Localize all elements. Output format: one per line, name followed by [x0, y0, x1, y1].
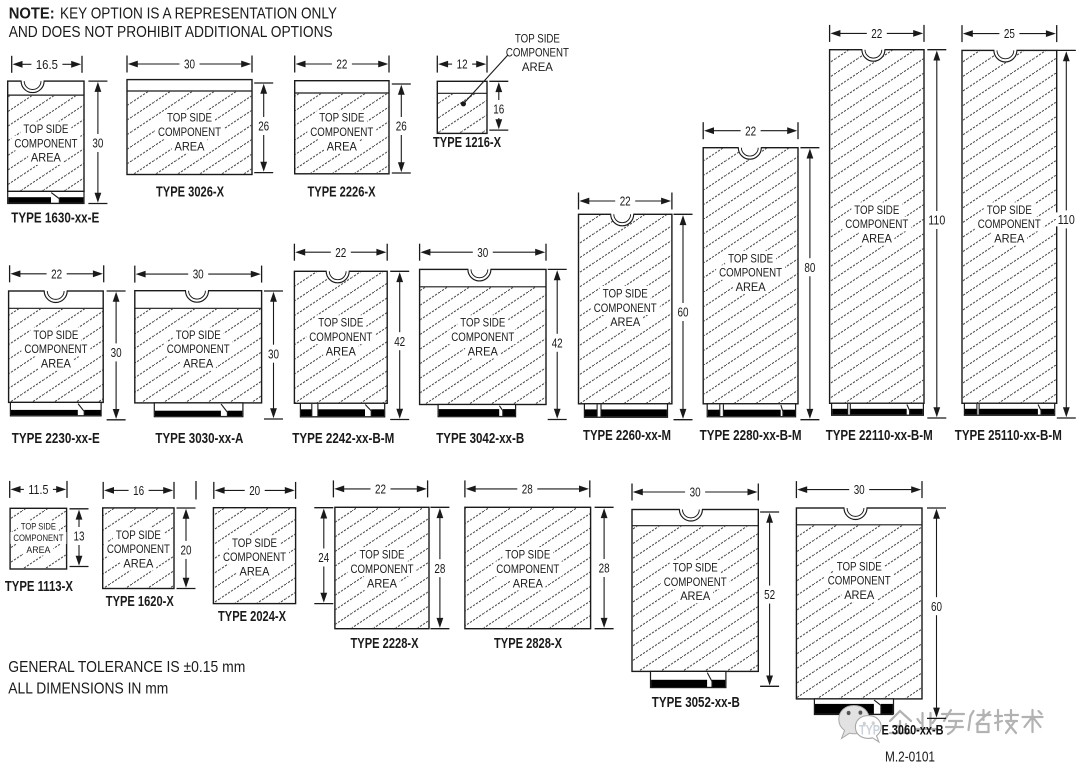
- svg-text:30: 30: [690, 485, 701, 500]
- svg-text:52: 52: [764, 587, 775, 602]
- svg-text:TOP SIDE: TOP SIDE: [515, 34, 560, 46]
- svg-text:TOP SIDE: TOP SIDE: [23, 122, 68, 136]
- svg-text:16.5: 16.5: [36, 57, 58, 72]
- svg-text:28: 28: [522, 482, 533, 497]
- svg-text:TYPE 2024-X: TYPE 2024-X: [218, 608, 286, 625]
- svg-text:30: 30: [193, 267, 204, 282]
- svg-text:TYPE 3042-xx-B: TYPE 3042-xx-B: [436, 430, 524, 447]
- svg-text:AREA: AREA: [610, 315, 640, 329]
- svg-text:110: 110: [1058, 212, 1075, 227]
- svg-text:TOP SIDE: TOP SIDE: [673, 561, 718, 575]
- svg-text:60: 60: [678, 305, 689, 320]
- svg-text:28: 28: [599, 561, 610, 576]
- svg-text:TYPE 1630-xx-E: TYPE 1630-xx-E: [11, 210, 99, 227]
- svg-text:AREA: AREA: [994, 232, 1024, 246]
- svg-text:TOP SIDE: TOP SIDE: [167, 111, 212, 125]
- svg-text:COMPONENT: COMPONENT: [309, 330, 372, 344]
- svg-text:110: 110: [928, 213, 945, 228]
- svg-text:M.2-0101: M.2-0101: [885, 749, 935, 766]
- svg-text:TYPE 3052-xx-B: TYPE 3052-xx-B: [652, 694, 740, 711]
- svg-text:30: 30: [854, 482, 865, 497]
- svg-text:22: 22: [51, 266, 62, 281]
- svg-text:COMPONENT: COMPONENT: [978, 217, 1041, 231]
- svg-text:TOP SIDE: TOP SIDE: [837, 559, 882, 573]
- svg-text:22: 22: [336, 57, 347, 72]
- svg-text:AREA: AREA: [327, 139, 357, 153]
- svg-text:TOP SIDE: TOP SIDE: [460, 316, 505, 330]
- svg-text:AREA: AREA: [326, 344, 356, 358]
- svg-text:TYPE 1620-X: TYPE 1620-X: [106, 593, 174, 610]
- svg-text:28: 28: [434, 561, 445, 576]
- svg-text:42: 42: [394, 334, 405, 349]
- svg-text:AREA: AREA: [468, 344, 498, 358]
- svg-text:TOP SIDE: TOP SIDE: [854, 203, 899, 217]
- svg-text:TYPE 2242-xx-B-M: TYPE 2242-xx-B-M: [292, 430, 394, 447]
- svg-text:COMPONENT: COMPONENT: [158, 125, 221, 139]
- svg-text:TOP SIDE: TOP SIDE: [232, 536, 277, 550]
- svg-text:TYP: TYP: [859, 722, 880, 738]
- svg-text:COMPONENT: COMPONENT: [664, 575, 727, 589]
- svg-text:11.5: 11.5: [28, 482, 48, 497]
- svg-text:30: 30: [111, 345, 122, 360]
- svg-text:TYPE 3026-X: TYPE 3026-X: [156, 184, 224, 201]
- svg-text:12: 12: [457, 57, 468, 72]
- svg-text:20: 20: [181, 543, 192, 558]
- svg-text:TYPE 2260-xx-M: TYPE 2260-xx-M: [583, 427, 671, 444]
- svg-text:AREA: AREA: [844, 588, 874, 602]
- svg-text:25: 25: [1004, 26, 1015, 41]
- svg-text:AREA: AREA: [367, 576, 397, 590]
- svg-text:COMPONENT: COMPONENT: [310, 125, 373, 139]
- svg-text:TOP SIDE: TOP SIDE: [33, 328, 78, 342]
- svg-text:GENERAL TOLERANCE IS ±0.15 mm: GENERAL TOLERANCE IS ±0.15 mm: [8, 659, 245, 676]
- svg-text:COMPONENT: COMPONENT: [223, 550, 286, 564]
- svg-text:TOP SIDE: TOP SIDE: [603, 287, 648, 301]
- svg-text:TOP SIDE: TOP SIDE: [116, 528, 161, 542]
- svg-text:42: 42: [552, 335, 563, 350]
- svg-text:COMPONENT: COMPONENT: [24, 342, 87, 356]
- svg-text:22: 22: [620, 194, 631, 209]
- svg-text:AND DOES NOT PROHIBIT ADDITION: AND DOES NOT PROHIBIT ADDITIONAL OPTIONS: [9, 24, 333, 41]
- svg-text:TYPE 2828-X: TYPE 2828-X: [494, 635, 562, 652]
- svg-text:TOP SIDE: TOP SIDE: [360, 548, 405, 562]
- svg-text:AREA: AREA: [41, 357, 71, 371]
- svg-text:80: 80: [804, 260, 815, 275]
- svg-text:TOP SIDE: TOP SIDE: [21, 522, 56, 532]
- svg-text:30: 30: [268, 346, 279, 361]
- svg-text:16: 16: [133, 483, 144, 498]
- svg-text:TYPE 22110-xx-B-M: TYPE 22110-xx-B-M: [826, 427, 933, 444]
- svg-text:30: 30: [92, 136, 103, 151]
- svg-text:13: 13: [74, 529, 85, 544]
- svg-text:TOP SIDE: TOP SIDE: [176, 328, 221, 342]
- svg-text:COMPONENT: COMPONENT: [719, 266, 782, 280]
- svg-text:TYPE 2226-X: TYPE 2226-X: [308, 184, 376, 201]
- svg-text:TOP SIDE: TOP SIDE: [728, 251, 773, 265]
- svg-text:TYPE 1216-X: TYPE 1216-X: [433, 134, 501, 151]
- svg-text:TYPE 2280-xx-B-M: TYPE 2280-xx-B-M: [700, 427, 802, 444]
- svg-text:TYPE 2228-X: TYPE 2228-X: [351, 635, 419, 652]
- svg-text:TYPE 3030-xx-A: TYPE 3030-xx-A: [155, 430, 243, 447]
- svg-text:AREA: AREA: [123, 557, 153, 571]
- svg-text:AREA: AREA: [240, 565, 270, 579]
- svg-text:AREA: AREA: [736, 280, 766, 294]
- svg-text:TOP SIDE: TOP SIDE: [319, 111, 364, 125]
- svg-text:30: 30: [477, 245, 488, 260]
- svg-text:TYPE 25110-xx-B-M: TYPE 25110-xx-B-M: [955, 427, 1062, 444]
- svg-text:COMPONENT: COMPONENT: [506, 48, 569, 60]
- svg-text:COMPONENT: COMPONENT: [167, 342, 230, 356]
- svg-text:AREA: AREA: [175, 139, 205, 153]
- svg-text:E 3060-xx-B: E 3060-xx-B: [882, 722, 944, 738]
- svg-text:ALL DIMENSIONS IN mm: ALL DIMENSIONS IN mm: [8, 681, 168, 698]
- svg-text:22: 22: [335, 245, 346, 260]
- svg-text:COMPONENT: COMPONENT: [351, 562, 414, 576]
- svg-text:AREA: AREA: [680, 589, 710, 603]
- svg-text:30: 30: [184, 57, 195, 72]
- svg-text:22: 22: [745, 123, 756, 138]
- svg-text:AREA: AREA: [31, 151, 61, 165]
- svg-text:COMPONENT: COMPONENT: [496, 562, 559, 576]
- svg-text:20: 20: [249, 483, 260, 498]
- svg-text:TOP SIDE: TOP SIDE: [505, 548, 550, 562]
- svg-text:AREA: AREA: [513, 576, 543, 590]
- svg-text:COMPONENT: COMPONENT: [14, 136, 77, 150]
- svg-text:COMPONENT: COMPONENT: [451, 330, 514, 344]
- svg-text:22: 22: [871, 26, 882, 41]
- svg-text:AREA: AREA: [862, 232, 892, 246]
- svg-text:26: 26: [396, 119, 407, 134]
- svg-text:AREA: AREA: [522, 62, 553, 74]
- svg-text:26: 26: [258, 119, 269, 134]
- svg-text:TYPE 1113-X: TYPE 1113-X: [5, 578, 73, 595]
- svg-text:16: 16: [493, 102, 504, 117]
- svg-text:AREA: AREA: [26, 545, 50, 555]
- svg-text:60: 60: [931, 599, 942, 614]
- svg-text:AREA: AREA: [183, 357, 213, 371]
- svg-text:TYPE 2230-xx-E: TYPE 2230-xx-E: [12, 430, 100, 447]
- svg-text:COMPONENT: COMPONENT: [594, 301, 657, 315]
- svg-text:22: 22: [375, 482, 386, 497]
- svg-text:COMPONENT: COMPONENT: [13, 533, 63, 543]
- svg-text:TOP SIDE: TOP SIDE: [318, 316, 363, 330]
- svg-text:COMPONENT: COMPONENT: [107, 542, 170, 556]
- svg-text:COMPONENT: COMPONENT: [828, 574, 891, 588]
- svg-text:COMPONENT: COMPONENT: [845, 217, 908, 231]
- svg-text:24: 24: [318, 550, 329, 565]
- svg-text:TOP SIDE: TOP SIDE: [987, 203, 1032, 217]
